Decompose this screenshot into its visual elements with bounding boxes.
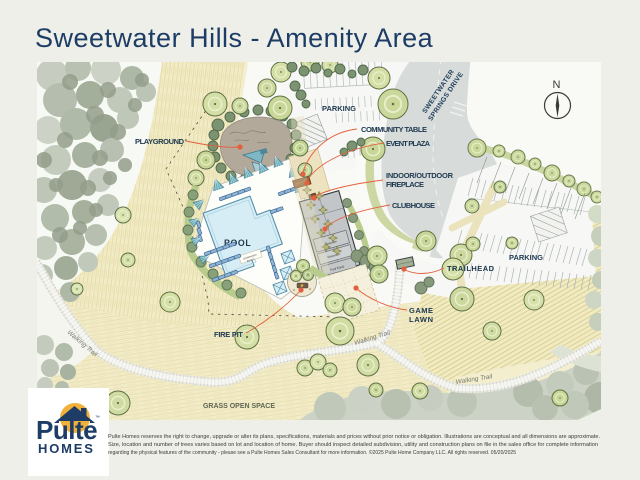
svg-text:N: N	[553, 79, 561, 91]
svg-text:regarding the physical feature: regarding the physical features of the c…	[108, 449, 517, 456]
svg-text:FIRE PIT: FIRE PIT	[214, 330, 243, 339]
svg-text:Pulte Homes reserves the right: Pulte Homes reserves the right to change…	[108, 434, 600, 440]
svg-text:EVENT PLAZA: EVENT PLAZA	[386, 139, 431, 148]
svg-text:HOMES: HOMES	[38, 441, 95, 456]
svg-text:PARKING: PARKING	[509, 253, 543, 262]
svg-text:GAME: GAME	[409, 306, 433, 315]
svg-text:PARKING: PARKING	[322, 104, 356, 113]
svg-text:FIREPLACE: FIREPLACE	[386, 180, 424, 189]
svg-text:Sweetwater Hills - Amenity Are: Sweetwater Hills - Amenity Area	[35, 23, 434, 53]
svg-text:COMMUNITY TABLE: COMMUNITY TABLE	[361, 125, 427, 134]
svg-text:TRAILHEAD: TRAILHEAD	[447, 264, 495, 273]
svg-text:GRASS OPEN SPACE: GRASS OPEN SPACE	[203, 401, 275, 410]
svg-text:INDOOR/OUTDOOR: INDOOR/OUTDOOR	[386, 171, 454, 180]
svg-text:Size, location and number of t: Size, location and number of trees varie…	[108, 442, 598, 448]
svg-text:LAWN: LAWN	[409, 315, 433, 324]
svg-text:PLAYGROUND: PLAYGROUND	[135, 137, 185, 146]
svg-text:CLUBHOUSE: CLUBHOUSE	[392, 201, 435, 210]
